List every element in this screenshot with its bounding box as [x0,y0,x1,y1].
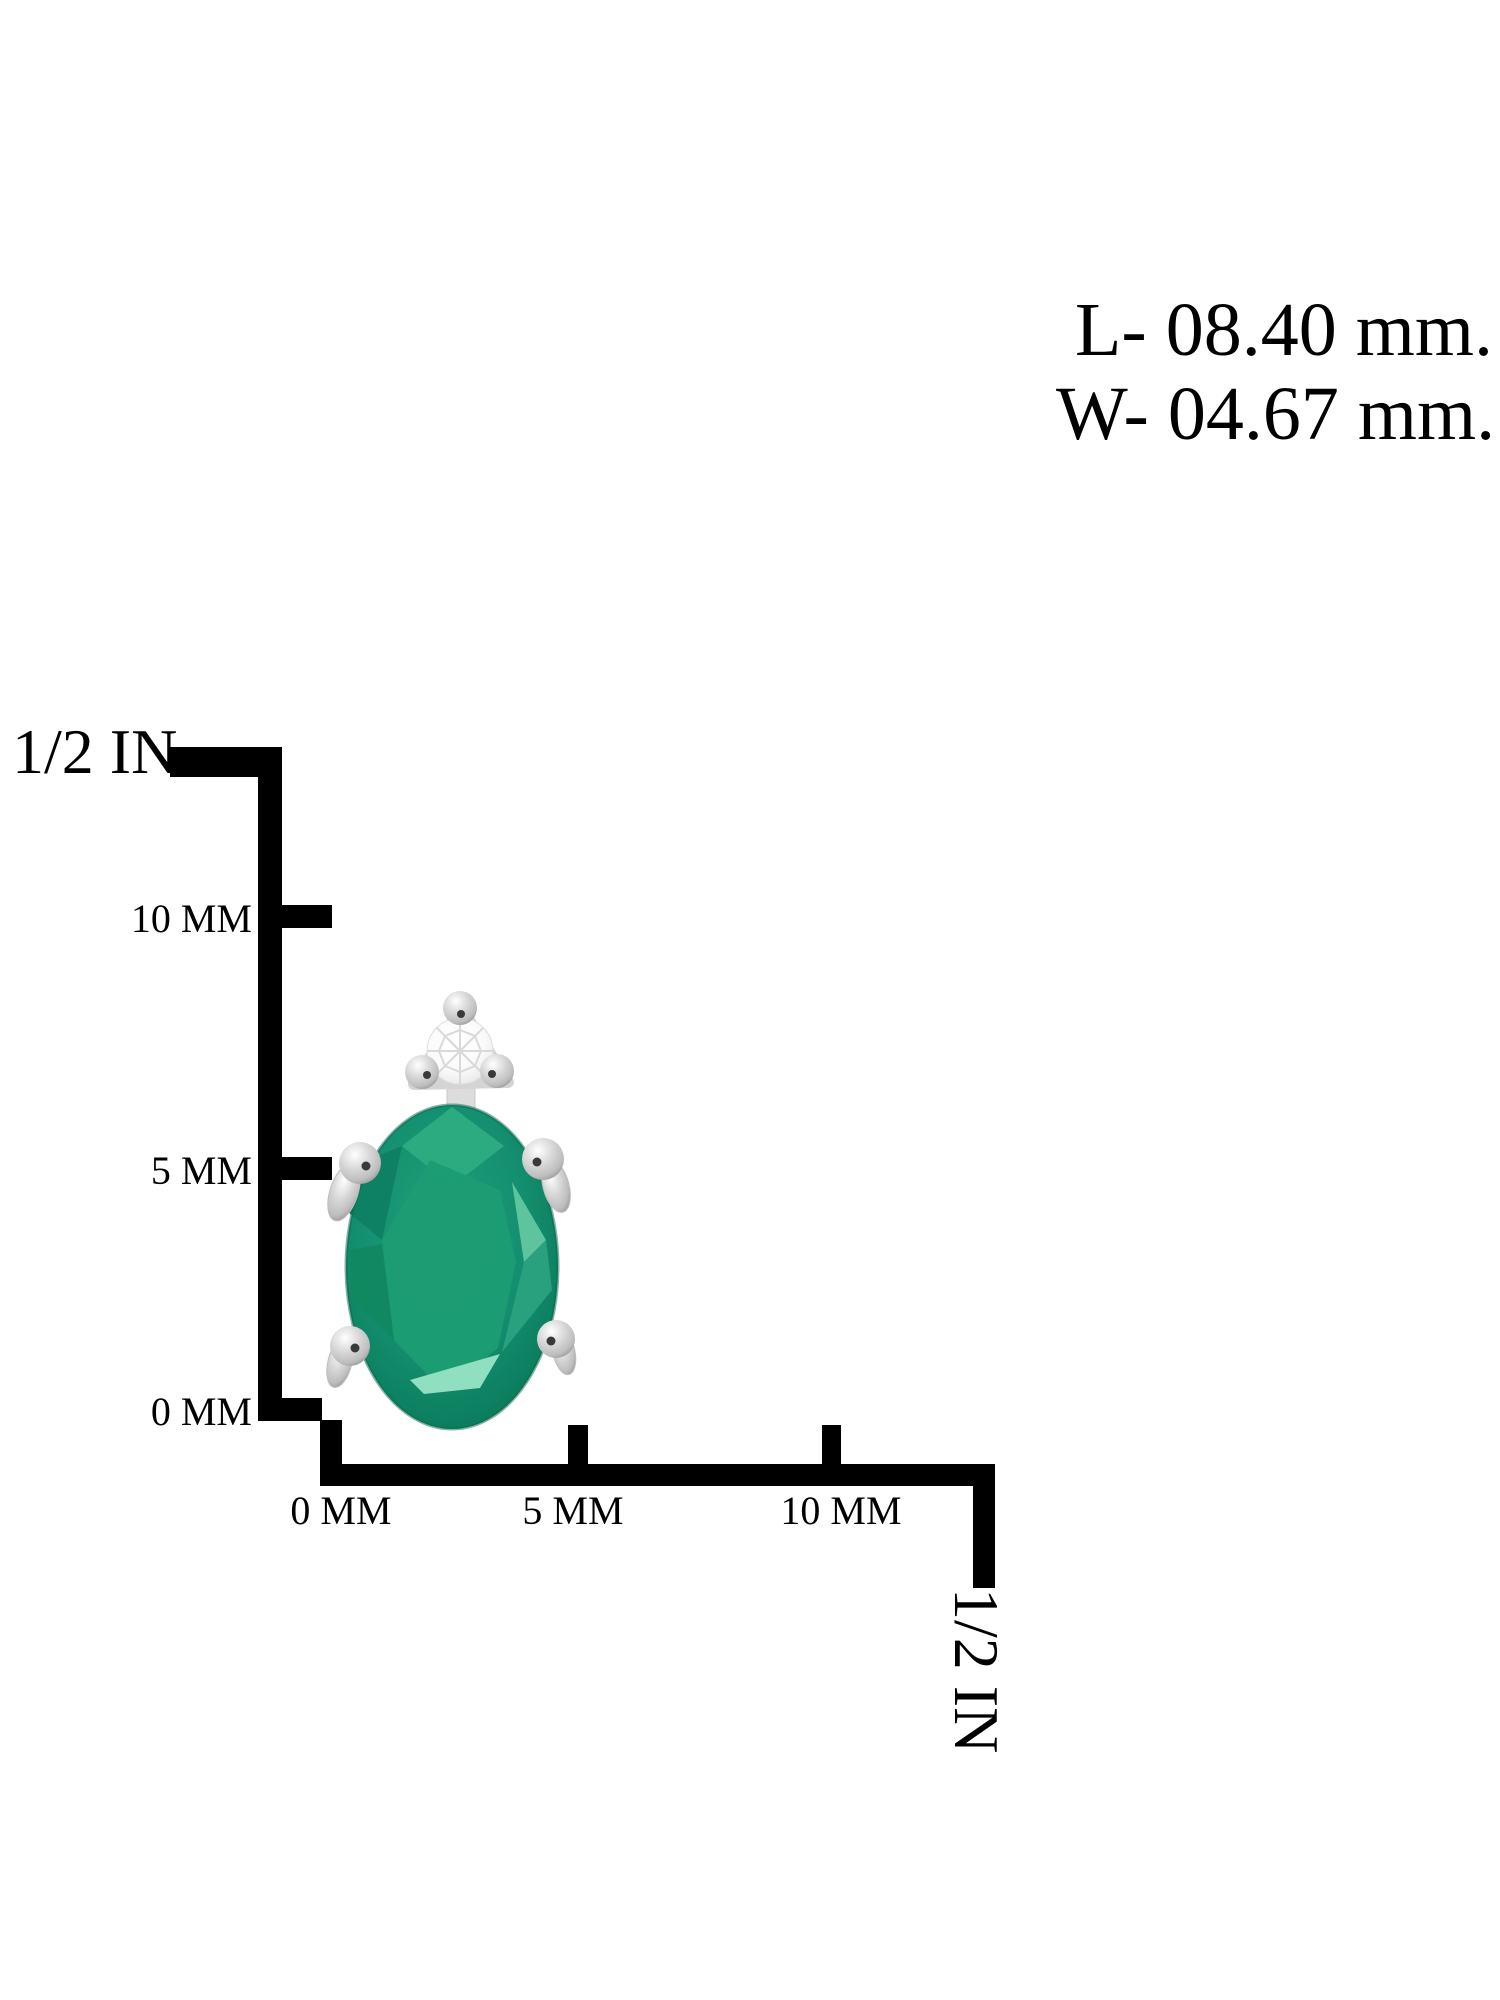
diamond-prong-left [405,1055,439,1089]
horizontal-ruler-label-10mm: 10 MM [761,1491,921,1531]
prong-speck [457,1010,465,1018]
horizontal-ruler-bar [320,1464,995,1486]
prong-ball-upper-left [339,1142,381,1184]
prong-ball-upper-right [522,1138,564,1180]
diamond-prong-right [480,1054,514,1088]
prong-speck [351,1344,360,1353]
diamond-prong-top [443,991,477,1025]
jewelry-measurement-diagram: L- 08.40 mm. W- 04.67 mm. 1/2 IN 10 MM 5… [0,0,1500,2000]
horizontal-ruler-half-inch-drop [973,1464,995,1588]
prong-speck [533,1158,542,1167]
prong-ball-lower-right [537,1320,575,1358]
prong-ball-lower-left [330,1326,370,1366]
prong-speck [362,1162,371,1171]
emerald-diamond-stud-earring [290,950,630,1450]
horizontal-ruler-inch-label: 1/2 IN [958,1588,1008,1738]
horizontal-ruler-tick-10mm [822,1425,841,1464]
horizontal-ruler-label-5mm: 5 MM [493,1491,653,1531]
vertical-ruler-label-5mm: 5 MM [92,1151,252,1191]
prong-speck [423,1071,431,1079]
prong-speck [488,1070,496,1078]
length-measurement-label: L- 08.40 mm. [1075,292,1493,368]
vertical-ruler-inch-label: 1/2 IN [12,720,177,784]
width-measurement-label: W- 04.67 mm. [1056,376,1495,452]
vertical-ruler-label-10mm: 10 MM [92,899,252,939]
prong-speck [547,1337,556,1346]
vertical-ruler-bar [258,747,282,1421]
diamond-setting [405,991,514,1114]
horizontal-ruler-label-0mm: 0 MM [261,1491,421,1531]
vertical-ruler-tick-10mm [282,905,332,928]
vertical-ruler-label-0mm: 0 MM [92,1392,252,1432]
